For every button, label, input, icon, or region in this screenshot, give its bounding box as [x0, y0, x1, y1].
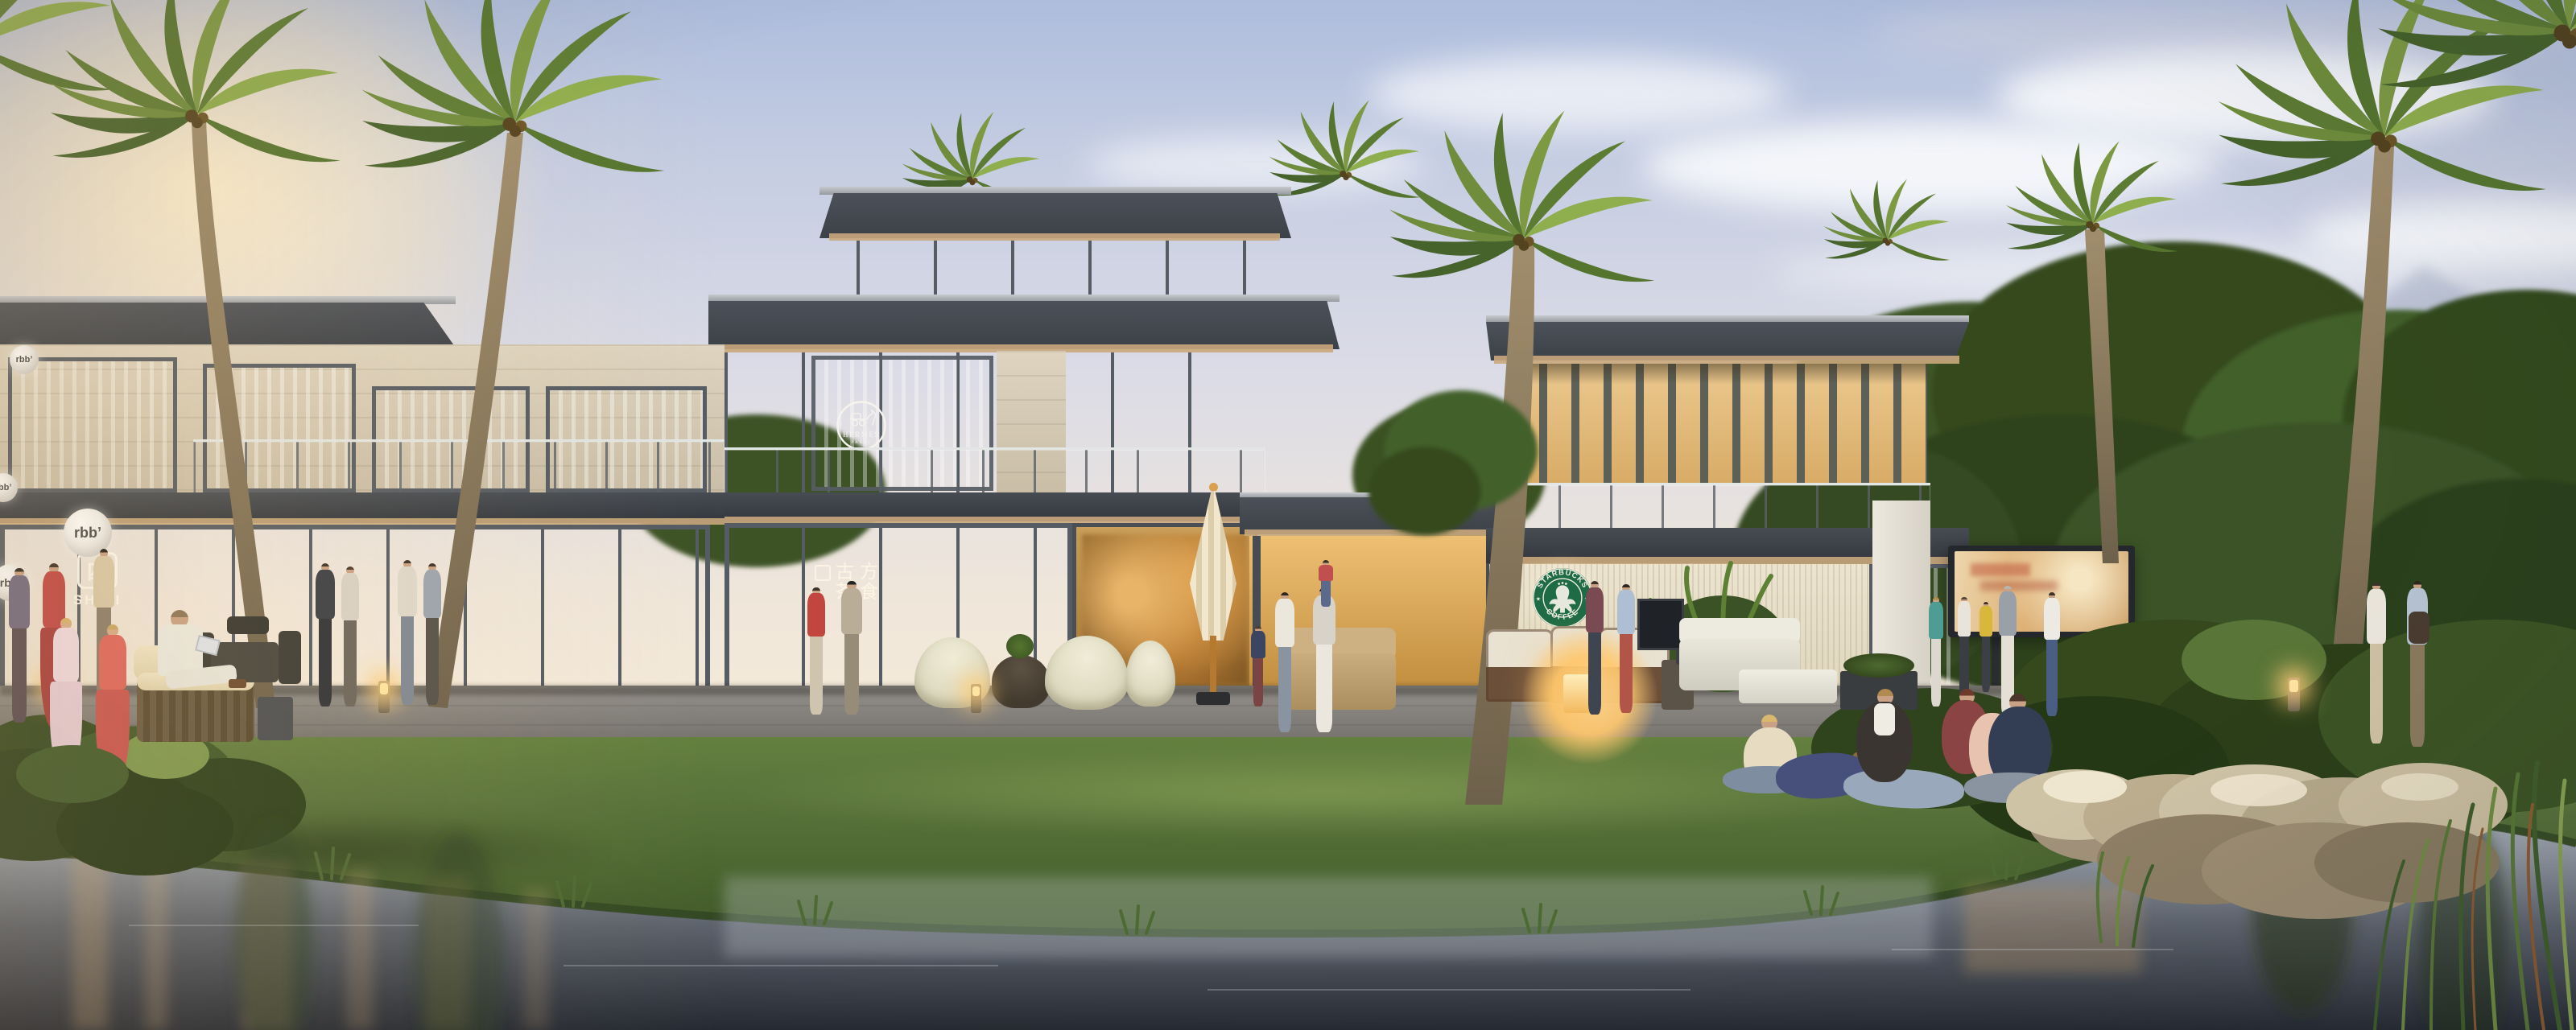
foreground-bank: [0, 0, 2576, 1030]
rock-group-right: [2006, 763, 2508, 919]
shore-grass-tufts: [90, 822, 2023, 933]
foreground-bush-left: [0, 745, 233, 875]
rendering-canvas: HERMES PARIS 古方 茶食 四 SHiKI: [0, 0, 2576, 1030]
